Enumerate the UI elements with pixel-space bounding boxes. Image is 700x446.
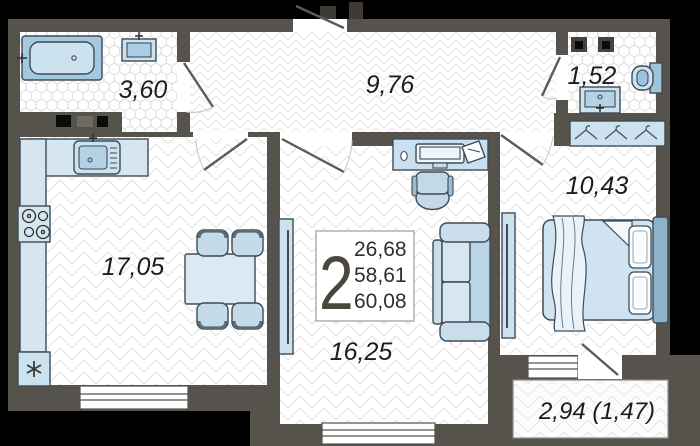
floor-plan-svg: 2 26,68 58,61 60,08 3,60 9,76 1,52 10,43…: [0, 0, 700, 446]
dining-chair: [197, 230, 228, 256]
floor-plan-stage: 2 26,68 58,61 60,08 3,60 9,76 1,52 10,43…: [0, 0, 700, 446]
rooms-count-label: 2: [319, 240, 354, 325]
living-window: [322, 423, 435, 444]
hallway-area-label: 9,76: [366, 71, 415, 99]
pillow: [629, 272, 651, 314]
sofa: [433, 223, 490, 341]
kitchen-area-label: 17,05: [102, 253, 165, 281]
dining-chair: [197, 303, 228, 329]
balcony-area-label: 2,94 (1,47): [538, 398, 655, 425]
desk-chair: [412, 172, 453, 210]
wardrobe: [570, 121, 665, 146]
dining-chair: [232, 303, 263, 329]
kitchen-counter-side: [20, 139, 46, 352]
area-value-2: 58,61: [354, 264, 407, 287]
dining-chair: [232, 230, 263, 256]
fridge: [18, 352, 50, 386]
area-value-3: 60,08: [354, 290, 407, 313]
info-box: 2 26,68 58,61 60,08: [316, 231, 414, 325]
wc-sink: [580, 87, 620, 113]
pillow: [629, 226, 651, 268]
kitchen-window: [80, 386, 188, 409]
tv-panel-bedroom: [502, 213, 515, 338]
throw-blanket: [552, 216, 586, 331]
living-room-area-label: 16,25: [330, 338, 393, 366]
mouse: [401, 152, 407, 161]
toilet: [632, 63, 662, 93]
tv-panel-living: [279, 219, 293, 354]
bathtub: [17, 36, 102, 80]
bedroom-area-label: 10,43: [566, 172, 629, 200]
wc-area-label: 1,52: [568, 62, 617, 90]
dining-table: [185, 254, 255, 304]
stove: [18, 206, 50, 242]
bed: [543, 216, 668, 331]
balcony-window: [528, 356, 578, 378]
bathroom-area-label: 3,60: [119, 76, 168, 104]
area-value-1: 26,68: [354, 238, 407, 261]
